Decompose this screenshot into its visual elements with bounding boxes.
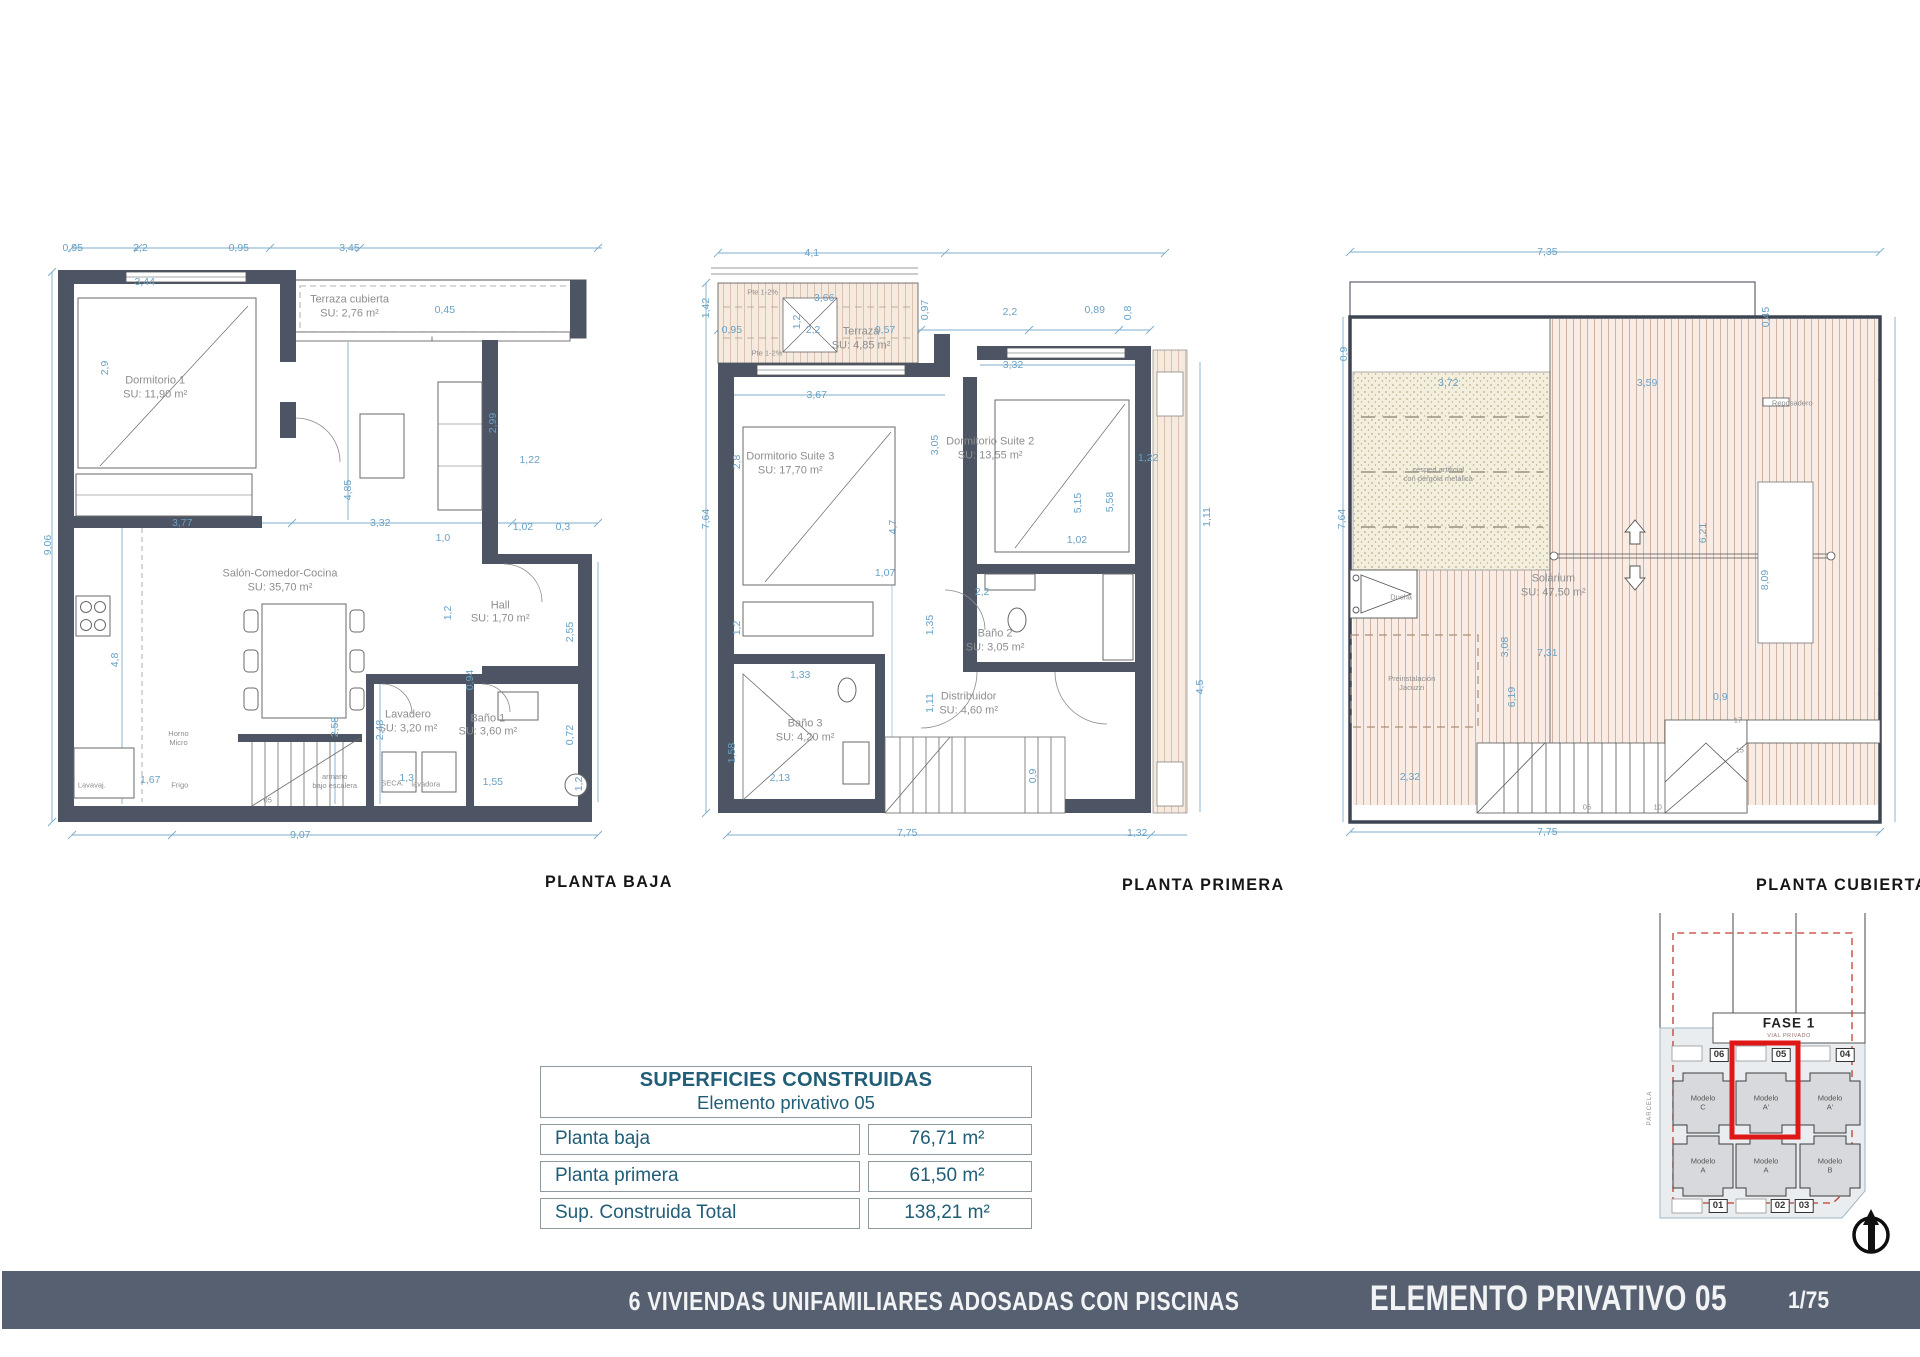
unit-number-01: 01 xyxy=(1709,1199,1728,1213)
unit-number-04: 04 xyxy=(1836,1048,1855,1062)
unit-number-05: 05 xyxy=(1772,1048,1791,1062)
plan-title-baja: PLANTA BAJA xyxy=(545,872,673,892)
planta-baja-drawing xyxy=(42,222,657,882)
plan-title-primera: PLANTA PRIMERA xyxy=(1122,875,1285,895)
model-label: Modelo A xyxy=(1691,1157,1716,1176)
areas-table: SUPERFICIES CONSTRUIDAS Elemento privati… xyxy=(540,1066,1032,1229)
planta-cubierta-drawing xyxy=(1335,222,1920,882)
unit-number-06: 06 xyxy=(1710,1048,1729,1062)
project-title: 6 VIVIENDAS UNIFAMILIARES ADOSADAS CON P… xyxy=(629,1286,1236,1317)
model-label: Modelo A xyxy=(1754,1157,1779,1176)
north-arrow-icon xyxy=(1854,1209,1888,1252)
table-row: Planta primera 61,50 m² xyxy=(540,1161,1032,1192)
floor-plan-planta-cubierta: SoláriumSU: 47,50 m²7,350,450,93,723,597… xyxy=(1335,222,1920,882)
site-plan-drawing xyxy=(1628,903,1920,1275)
page-number: 1/75 xyxy=(1788,1287,1829,1315)
floor-plan-planta-primera: TerrazaSU: 4,85 m²Dormitorio Suite 3SU: … xyxy=(695,222,1310,882)
title-block-bar: 6 VIVIENDAS UNIFAMILIARES ADOSADAS CON P… xyxy=(2,1271,1920,1329)
plan-title-cubierta: PLANTA CUBIERTA xyxy=(1756,875,1920,895)
sheet-title: ELEMENTO PRIVATIVO 05 xyxy=(1370,1279,1727,1319)
row-value: 138,21 m² xyxy=(868,1198,1032,1229)
row-value: 61,50 m² xyxy=(868,1161,1032,1192)
site-plan: FASE 1 VIAL PRIVADO PARCELA 06 05 04 01 … xyxy=(1628,903,1920,1275)
model-label: Modelo A' xyxy=(1818,1094,1843,1113)
vial-privado-label: VIAL PRIVADO xyxy=(1767,1033,1811,1039)
table-title: SUPERFICIES CONSTRUIDAS xyxy=(541,1069,1031,1092)
row-label: Planta baja xyxy=(540,1124,860,1155)
floor-plan-planta-baja: Dormitorio 1SU: 11,90 m²Terraza cubierta… xyxy=(42,222,657,882)
planta-primera-drawing xyxy=(695,222,1310,882)
row-value: 76,71 m² xyxy=(868,1124,1032,1155)
row-label: Sup. Construida Total xyxy=(540,1198,860,1229)
model-label: Modelo A' xyxy=(1754,1094,1779,1113)
unit-number-02: 02 xyxy=(1771,1199,1790,1213)
table-row: Sup. Construida Total 138,21 m² xyxy=(540,1198,1032,1229)
unit-number-03: 03 xyxy=(1795,1199,1814,1213)
parcela-label: PARCELA xyxy=(1647,1091,1653,1126)
drawing-sheet: Dormitorio 1SU: 11,90 m²Terraza cubierta… xyxy=(0,0,1920,1357)
table-row: Planta baja 76,71 m² xyxy=(540,1124,1032,1155)
model-label: Modelo B xyxy=(1818,1157,1843,1176)
fase-label: FASE 1 xyxy=(1763,1016,1816,1031)
model-label: Modelo C xyxy=(1691,1094,1716,1113)
table-subtitle: Elemento privativo 05 xyxy=(541,1092,1031,1114)
areas-table-header: SUPERFICIES CONSTRUIDAS Elemento privati… xyxy=(540,1066,1032,1118)
row-label: Planta primera xyxy=(540,1161,860,1192)
